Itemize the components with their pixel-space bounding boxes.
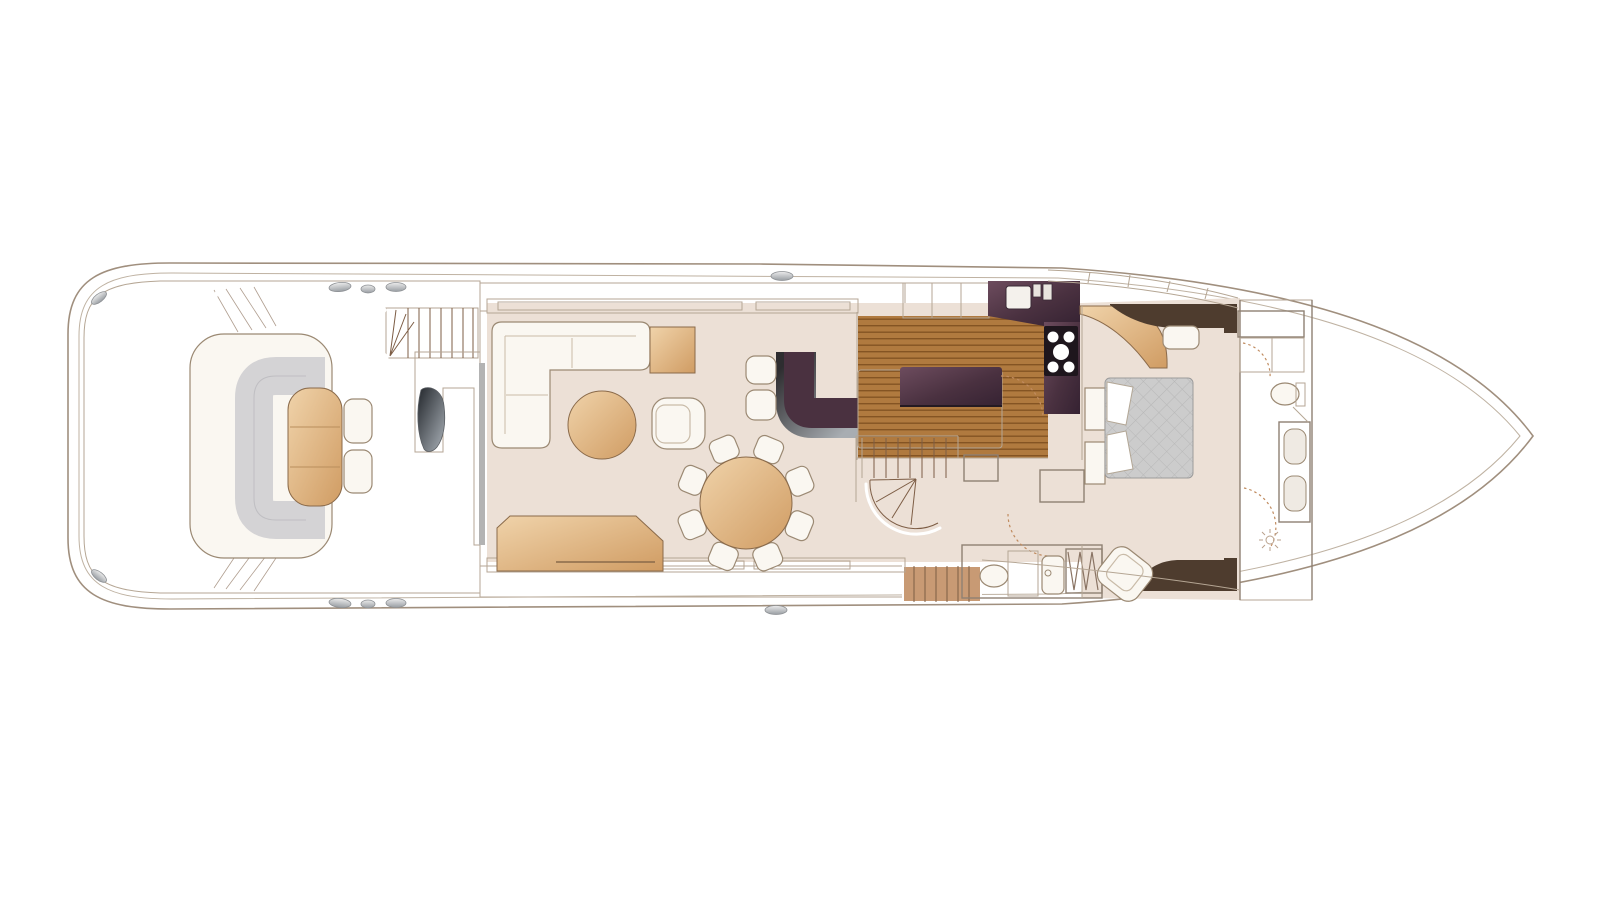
wall-panel	[1224, 306, 1237, 333]
cleat	[361, 600, 375, 608]
bar-stool	[746, 390, 776, 420]
deck-chair	[344, 399, 372, 443]
yacht-floorplan-canvas	[0, 0, 1600, 900]
cleat	[361, 285, 375, 293]
sideboard	[497, 516, 663, 571]
galley-island-top	[900, 367, 1002, 407]
yacht-floorplan	[0, 0, 1600, 900]
cocktail-table	[288, 388, 342, 506]
vanity-sink	[1284, 476, 1306, 511]
cleat	[771, 272, 793, 281]
cooktop	[1044, 326, 1078, 376]
side-steps	[903, 566, 981, 602]
round-coffee-table	[568, 391, 636, 459]
cleat	[765, 606, 787, 615]
salon-door-track	[479, 363, 485, 545]
galley-appliance	[1043, 284, 1052, 300]
nightstand	[1085, 388, 1105, 430]
nightstand	[1085, 442, 1105, 484]
deck-chair	[344, 450, 372, 493]
vanity-sink	[1284, 429, 1306, 464]
master-toilet	[1271, 383, 1299, 405]
master-bench-seat	[1163, 326, 1199, 349]
armchair	[652, 398, 705, 449]
bar-stool	[746, 356, 776, 384]
round-dining-table	[700, 457, 792, 549]
wall-panel	[1224, 558, 1237, 588]
corner-side-table	[650, 327, 695, 373]
cleat	[386, 283, 406, 292]
toilet	[980, 565, 1008, 587]
cleat	[386, 599, 406, 608]
corridor-floor	[955, 458, 1082, 562]
galley-appliance	[1033, 284, 1041, 297]
galley-sink	[1006, 286, 1031, 309]
